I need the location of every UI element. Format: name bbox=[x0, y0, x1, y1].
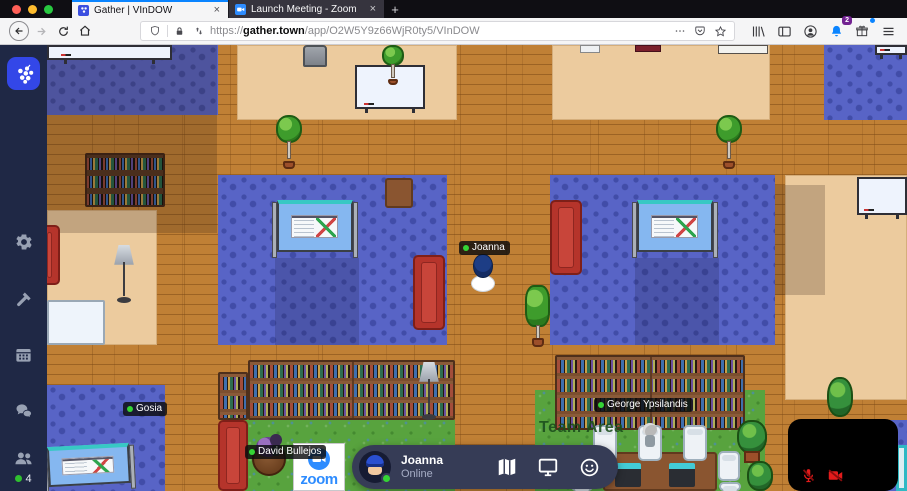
sprite-hat bbox=[473, 254, 492, 278]
avatar-hat bbox=[366, 455, 384, 467]
reload-button[interactable] bbox=[52, 20, 74, 42]
whats-new-gift-icon[interactable] bbox=[851, 20, 873, 42]
gather-app: 4 bbox=[0, 45, 907, 491]
account-icon[interactable] bbox=[799, 20, 821, 42]
chair bbox=[683, 425, 707, 461]
url-text[interactable]: https://gather.town/app/O2W5Y9z66WjR0ty5… bbox=[210, 25, 668, 37]
screen-pole bbox=[713, 202, 718, 258]
player-name: David Bullejos bbox=[258, 447, 321, 457]
presentation-screen[interactable] bbox=[47, 443, 136, 491]
browser-toolbar: https://gather.town/app/O2W5Y9z66WjR0ty5… bbox=[0, 18, 907, 45]
sink bbox=[580, 45, 600, 53]
site-permissions-icon[interactable] bbox=[191, 20, 206, 42]
calendar-icon[interactable] bbox=[13, 344, 34, 365]
online-count: 4 bbox=[0, 473, 47, 485]
close-tab-icon[interactable]: × bbox=[212, 4, 222, 16]
bookmark-star-icon[interactable] bbox=[712, 20, 728, 42]
side-table bbox=[385, 178, 413, 208]
player-name: Joanna bbox=[472, 243, 505, 253]
sidebars-icon[interactable] bbox=[773, 20, 795, 42]
page-actions-icon[interactable] bbox=[672, 20, 688, 42]
participants-icon[interactable] bbox=[13, 448, 34, 469]
hamburger-menu-icon[interactable] bbox=[877, 20, 899, 42]
whiteboard[interactable] bbox=[875, 45, 907, 55]
minimize-window-button[interactable] bbox=[28, 5, 37, 14]
tab-title: Launch Meeting - Zoom bbox=[251, 4, 363, 15]
player-label-gosia: Gosia bbox=[123, 402, 167, 416]
red-couch bbox=[550, 200, 582, 275]
presentation-screen[interactable] bbox=[632, 200, 718, 258]
mic-muted-icon bbox=[800, 467, 817, 484]
presence-dot bbox=[127, 406, 133, 412]
settings-gear-icon[interactable] bbox=[13, 231, 34, 252]
online-count-value: 4 bbox=[25, 473, 31, 485]
status-dot bbox=[381, 473, 392, 484]
user-name: Joanna bbox=[401, 453, 443, 467]
piano bbox=[635, 45, 661, 52]
tall-plant bbox=[525, 285, 550, 347]
screen-pole bbox=[353, 202, 358, 258]
player-sprite-george[interactable] bbox=[640, 423, 660, 447]
forward-button[interactable] bbox=[30, 20, 52, 42]
shadow bbox=[635, 258, 719, 345]
screenshare-button[interactable] bbox=[537, 456, 559, 478]
shadow bbox=[275, 258, 359, 345]
back-button[interactable] bbox=[8, 20, 30, 42]
potted-tree bbox=[716, 115, 742, 169]
player-name: Gosia bbox=[136, 404, 162, 414]
plant bbox=[827, 377, 853, 417]
zoom-favicon bbox=[235, 4, 246, 15]
player-name: George Ypsilandis bbox=[607, 400, 688, 410]
camera-muted-icon bbox=[825, 467, 846, 484]
presence-dot bbox=[463, 245, 469, 251]
close-window-button[interactable] bbox=[12, 5, 21, 14]
tab-gather[interactable]: Gather | VInDOW × bbox=[72, 0, 228, 18]
screen-surface bbox=[277, 200, 353, 252]
online-dot bbox=[15, 475, 22, 482]
plant bbox=[737, 420, 767, 454]
chair bbox=[719, 482, 741, 491]
url-domain: gather.town bbox=[243, 25, 305, 37]
gather-sidebar: 4 bbox=[0, 45, 47, 491]
laptop bbox=[669, 463, 695, 487]
whiteboard[interactable] bbox=[47, 45, 172, 60]
control-bar-actions bbox=[496, 456, 600, 478]
game-map[interactable]: zoom Joanna Gosia David Bullejos George … bbox=[47, 45, 907, 491]
player-sprite-joanna[interactable] bbox=[468, 254, 498, 292]
presentation-screen[interactable] bbox=[272, 200, 358, 258]
trash-can bbox=[303, 45, 327, 67]
plant bbox=[747, 461, 773, 491]
user-meta[interactable]: Joanna Online bbox=[401, 453, 443, 481]
notifications-bell-icon[interactable]: 2 bbox=[825, 20, 847, 42]
monitor-icon bbox=[537, 456, 559, 478]
bookshelf bbox=[85, 153, 165, 207]
smiley-icon bbox=[579, 457, 600, 478]
bookshelf bbox=[218, 372, 248, 420]
screen-document bbox=[651, 215, 699, 238]
tab-title: Gather | VInDOW bbox=[94, 5, 207, 16]
screen-document bbox=[291, 215, 339, 238]
video-status-icons bbox=[800, 467, 846, 484]
browser-tab-bar: Gather | VInDOW × Launch Meeting - Zoom … bbox=[0, 0, 907, 18]
floor-lamp bbox=[415, 362, 443, 420]
map-button[interactable] bbox=[496, 456, 518, 478]
screen-surface bbox=[47, 443, 131, 487]
new-tab-button[interactable]: + bbox=[384, 0, 406, 18]
potted-tree bbox=[276, 115, 302, 169]
shadow bbox=[775, 185, 825, 295]
sprite-body bbox=[645, 435, 655, 447]
url-bar[interactable]: https://gather.town/app/O2W5Y9z66WjR0ty5… bbox=[140, 21, 735, 41]
tab-zoom[interactable]: Launch Meeting - Zoom × bbox=[228, 0, 384, 18]
gather-logo[interactable] bbox=[7, 57, 40, 90]
red-couch bbox=[218, 420, 248, 491]
player-label-david: David Bullejos bbox=[245, 445, 326, 459]
whiteboard[interactable] bbox=[857, 177, 907, 215]
chat-bubbles-icon[interactable] bbox=[13, 400, 34, 421]
white-table bbox=[47, 300, 105, 345]
screen-surface bbox=[637, 200, 713, 252]
lock-icon[interactable] bbox=[172, 20, 187, 42]
zoom-poster-text: zoom bbox=[300, 472, 337, 487]
team-area-label: Team Area bbox=[539, 419, 624, 437]
screen-document bbox=[62, 456, 114, 476]
toolbar-right-icons: 2 bbox=[747, 20, 899, 42]
red-couch bbox=[413, 255, 445, 330]
presence-dot bbox=[249, 449, 255, 455]
browser-window: Gather | VInDOW × Launch Meeting - Zoom … bbox=[0, 0, 907, 491]
url-scheme: https:// bbox=[210, 25, 243, 37]
library-icon[interactable] bbox=[747, 20, 769, 42]
emote-button[interactable] bbox=[578, 456, 600, 478]
divider bbox=[167, 25, 168, 37]
self-video-preview[interactable] bbox=[788, 419, 898, 491]
url-path: /app/O2W5Y9z66WjR0ty5/VInDOW bbox=[305, 25, 480, 37]
home-button[interactable] bbox=[74, 20, 96, 42]
player-label-joanna: Joanna bbox=[459, 241, 510, 255]
potted-tree bbox=[382, 45, 404, 85]
user-avatar[interactable] bbox=[359, 451, 391, 483]
save-to-pocket-icon[interactable] bbox=[692, 20, 708, 42]
gather-favicon bbox=[78, 5, 89, 16]
floor-lamp bbox=[110, 245, 138, 303]
laptop bbox=[615, 463, 641, 487]
player-label-george: George Ypsilandis bbox=[594, 398, 693, 412]
zoom-window-button[interactable] bbox=[44, 5, 53, 14]
presence-dot bbox=[598, 402, 604, 408]
close-tab-icon[interactable]: × bbox=[368, 3, 378, 15]
meeting-room-floor bbox=[552, 45, 770, 120]
window-controls bbox=[0, 0, 72, 18]
chair bbox=[718, 451, 740, 481]
red-couch bbox=[47, 225, 60, 285]
bottom-control-bar: Joanna Online bbox=[352, 445, 618, 489]
build-hammer-icon[interactable] bbox=[13, 289, 34, 310]
tracking-shield-icon[interactable] bbox=[147, 20, 163, 42]
map-icon bbox=[496, 456, 518, 478]
user-status: Online bbox=[401, 468, 443, 481]
update-dot bbox=[870, 18, 875, 23]
wall-shelf bbox=[718, 45, 768, 54]
